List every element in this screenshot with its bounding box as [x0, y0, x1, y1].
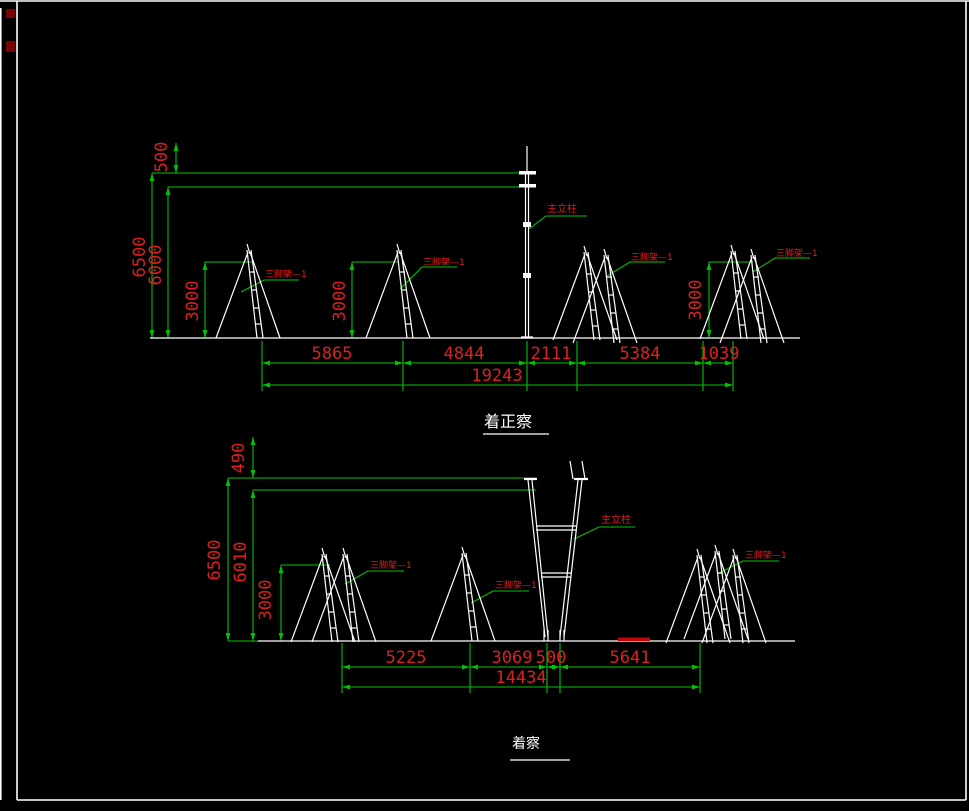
dim-text: 6000: [146, 245, 166, 286]
dim-text: 3000: [183, 281, 203, 322]
dim-text: 1039: [699, 344, 740, 364]
leader-line: [607, 262, 665, 276]
dim-text: 14434: [495, 668, 546, 688]
front-view-caption: 着正察: [483, 412, 549, 434]
dim-text: 500: [536, 648, 567, 668]
side-view: 6500 6010 490 3000 5225 3069 500 5641 14…: [205, 437, 795, 760]
cad-canvas[interactable]: 6500 6000 500 3000 3000 3000 5865 4844 2…: [0, 0, 969, 811]
leader-line: [574, 527, 635, 539]
main-column-side: [524, 461, 588, 641]
leader-line: [529, 216, 587, 229]
side-view-title: 着察: [512, 735, 540, 752]
dim-text: 19243: [471, 366, 522, 386]
dim-text: 490: [229, 443, 249, 474]
dim-text: 2111: [531, 344, 572, 364]
front-view-title: 着正察: [484, 412, 532, 431]
tripod: [431, 547, 495, 641]
dim-text: 3000: [686, 280, 706, 321]
leader-line: [717, 561, 779, 574]
tripod-label: 三脚架—1: [423, 257, 465, 268]
tripod-label: 三脚架—1: [776, 248, 818, 259]
tripod-label: 三脚架—1: [745, 550, 787, 561]
dim-text: 5865: [312, 344, 353, 364]
tripod-label: 三脚架—1: [495, 580, 537, 591]
dim-text: 3069: [492, 648, 533, 668]
dim-text: 3000: [330, 281, 350, 322]
paper-frame: [0, 1, 969, 800]
front-view: 6500 6000 500 3000 3000 3000 5865 4844 2…: [130, 142, 818, 434]
dim-text: 6010: [231, 542, 251, 583]
side-view-geometry: [258, 461, 795, 643]
dim-text: 500: [152, 142, 172, 173]
tripod: [684, 545, 748, 639]
dim-text: 5225: [386, 648, 427, 668]
tripod-label: 三脚架—1: [370, 560, 412, 571]
tripod-label: 三脚架—1: [265, 269, 307, 280]
dim-text: 4844: [444, 344, 485, 364]
tripod: [291, 548, 355, 642]
dim-text: 6500: [205, 540, 225, 581]
front-view-dim-texts: 6500 6000 500 3000 3000 3000 5865 4844 2…: [130, 142, 818, 386]
dim-text: 5641: [610, 648, 651, 668]
tripod: [553, 246, 617, 340]
corner-marker: [6, 9, 15, 18]
corner-marker: [6, 41, 15, 52]
main-column: [519, 146, 536, 338]
ground-mark: [618, 638, 650, 642]
side-view-caption: 着察: [510, 735, 570, 760]
tripod-label: 三脚架—1: [631, 252, 673, 263]
leader-line: [241, 280, 299, 292]
leader-line: [753, 258, 810, 272]
tripod: [366, 244, 430, 338]
tripod: [312, 548, 376, 642]
main-column-label: 主立柱: [547, 202, 577, 215]
tripod: [216, 244, 280, 338]
dim-text: 5384: [620, 344, 661, 364]
tripod: [720, 249, 784, 343]
dim-text: 3000: [256, 580, 276, 621]
main-column-label: 主立柱: [601, 513, 631, 526]
